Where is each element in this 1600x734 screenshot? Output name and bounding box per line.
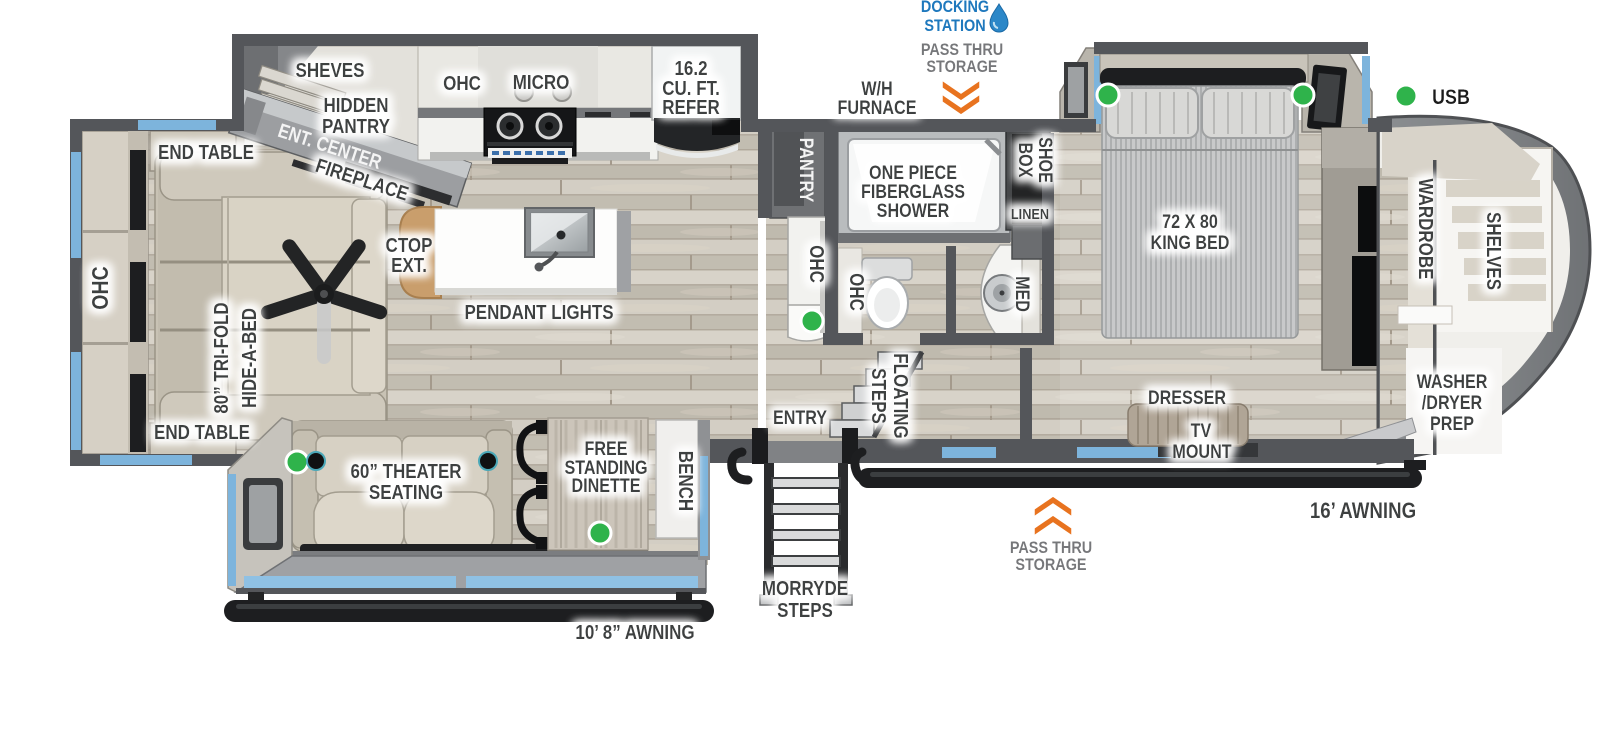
svg-text:KING BED: KING BED <box>1151 232 1230 254</box>
svg-text:END TABLE: END TABLE <box>154 421 250 444</box>
svg-text:STEPS: STEPS <box>868 368 891 424</box>
svg-text:BOX: BOX <box>1015 143 1037 178</box>
svg-text:DRESSER: DRESSER <box>1148 387 1226 409</box>
svg-text:60” THEATER: 60” THEATER <box>350 460 462 483</box>
svg-text:USB: USB <box>1432 86 1470 110</box>
svg-text:WARDROBE: WARDROBE <box>1415 179 1438 280</box>
svg-text:72 X 80: 72 X 80 <box>1162 211 1218 233</box>
svg-text:REFER: REFER <box>662 96 720 119</box>
svg-text:MED: MED <box>1012 276 1034 312</box>
svg-text:ENTRY: ENTRY <box>773 407 827 429</box>
svg-text:PREP: PREP <box>1430 413 1474 435</box>
svg-text:STEPS: STEPS <box>777 599 833 622</box>
svg-text:OHC: OHC <box>806 245 829 283</box>
svg-text:80” TRI-FOLD: 80” TRI-FOLD <box>210 302 233 413</box>
svg-text:HIDDEN: HIDDEN <box>323 94 388 117</box>
svg-text:EXT.: EXT. <box>391 254 427 277</box>
svg-text:FURNACE: FURNACE <box>838 97 917 119</box>
svg-text:SHOWER: SHOWER <box>877 200 950 222</box>
svg-text:OHC: OHC <box>846 273 869 311</box>
svg-text:HIDE-A-BED: HIDE-A-BED <box>238 308 261 408</box>
svg-text:PASS THRU: PASS THRU <box>921 41 1003 59</box>
svg-text:OHC: OHC <box>88 266 114 309</box>
svg-text:16’ AWNING: 16’ AWNING <box>1310 500 1416 524</box>
svg-text:PANTRY: PANTRY <box>796 138 818 203</box>
svg-text:DOCKING: DOCKING <box>921 0 989 16</box>
svg-text:MOUNT: MOUNT <box>1172 441 1231 463</box>
svg-text:FLOATING: FLOATING <box>890 353 913 439</box>
svg-text:STORAGE: STORAGE <box>1015 556 1086 574</box>
svg-text:SHOE: SHOE <box>1035 137 1057 183</box>
svg-text:/DRYER: /DRYER <box>1422 392 1483 414</box>
svg-text:LINEN: LINEN <box>1011 205 1049 222</box>
svg-text:PANTRY: PANTRY <box>322 115 391 138</box>
svg-text:WASHER: WASHER <box>1417 371 1488 393</box>
svg-text:SEATING: SEATING <box>369 481 443 504</box>
svg-text:MICRO: MICRO <box>513 71 570 94</box>
svg-text:SHEVES: SHEVES <box>296 59 365 82</box>
svg-text:PASS THRU: PASS THRU <box>1010 539 1092 557</box>
svg-text:STATION: STATION <box>924 17 985 35</box>
svg-text:OHC: OHC <box>443 72 481 95</box>
svg-text:DINETTE: DINETTE <box>571 475 640 497</box>
svg-text:TV: TV <box>1191 420 1212 442</box>
svg-text:MORRYDE: MORRYDE <box>762 577 848 600</box>
svg-text:BENCH: BENCH <box>675 451 698 511</box>
svg-text:10’ 8” AWNING: 10’ 8” AWNING <box>575 621 694 644</box>
svg-text:PENDANT LIGHTS: PENDANT LIGHTS <box>464 301 613 324</box>
svg-text:SHELVES: SHELVES <box>1483 212 1506 290</box>
svg-text:END TABLE: END TABLE <box>158 141 254 164</box>
svg-text:STORAGE: STORAGE <box>926 58 997 76</box>
